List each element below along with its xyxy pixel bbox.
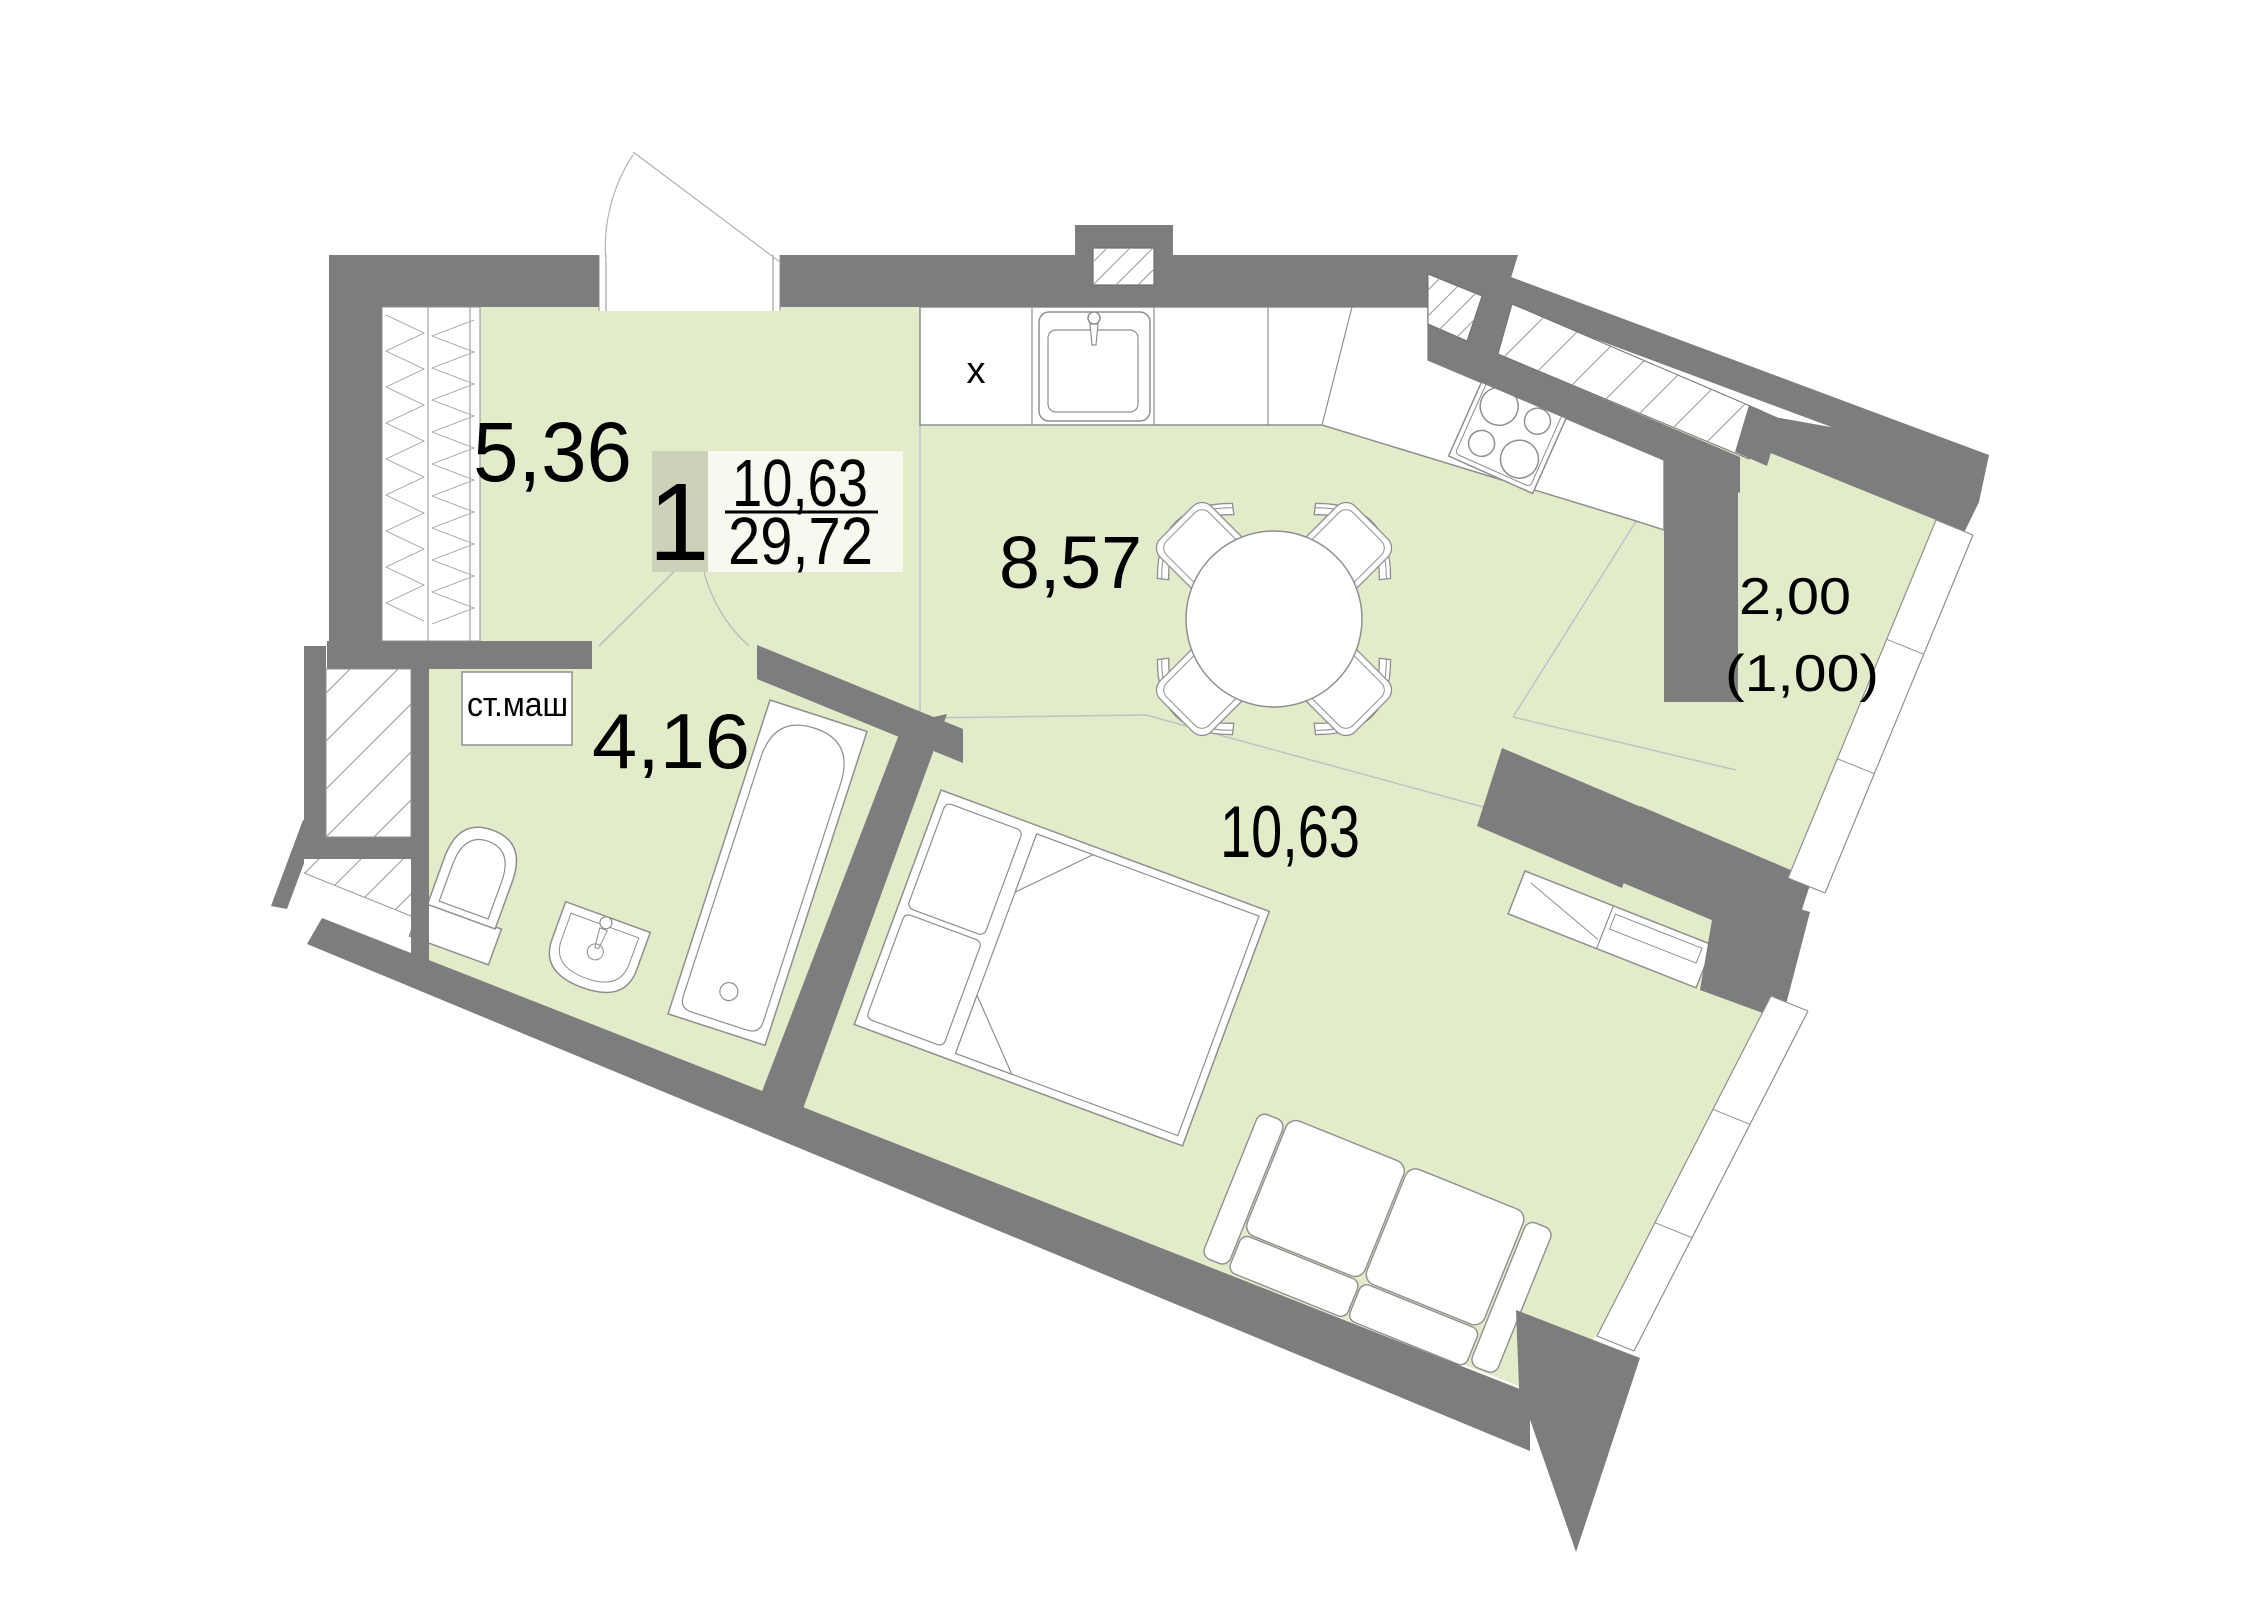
svg-text:29,72: 29,72 (728, 504, 873, 579)
svg-text:10,63: 10,63 (1220, 792, 1360, 873)
svg-text:х: х (967, 350, 986, 392)
svg-text:(1,00): (1,00) (1725, 645, 1879, 703)
svg-text:2,00: 2,00 (1739, 568, 1851, 626)
svg-text:1: 1 (648, 461, 709, 584)
svg-text:ст.маш: ст.маш (467, 686, 568, 724)
svg-text:8,57: 8,57 (999, 521, 1142, 604)
svg-text:5,36: 5,36 (473, 405, 632, 499)
svg-text:4,16: 4,16 (592, 697, 750, 785)
